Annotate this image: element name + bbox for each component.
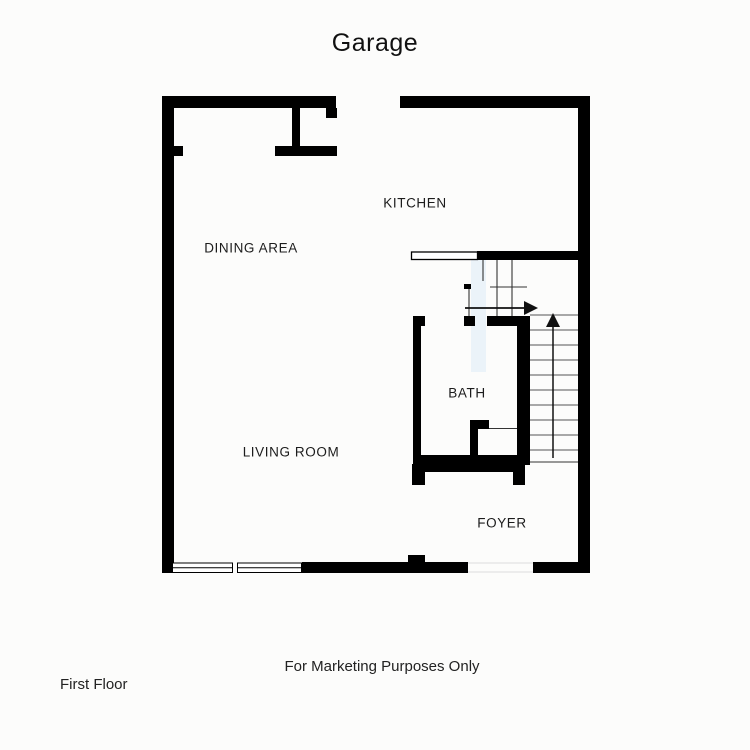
- bath-stair-shared-wall: [517, 316, 530, 463]
- bath-door-stop: [464, 284, 471, 289]
- bath-partition-stub: [470, 420, 489, 429]
- living-room-windows: [173, 563, 302, 573]
- room-label-foyer: FOYER: [477, 516, 527, 531]
- foyer-bottom-left-stub: [408, 555, 425, 563]
- bottom-wall-right-segment: [533, 562, 590, 573]
- foyer-walls: [408, 464, 525, 563]
- room-label-living-room: LIVING ROOM: [243, 445, 340, 460]
- bath-left-wall: [413, 316, 421, 465]
- closet-bottom-wall: [275, 146, 337, 156]
- bottom-wall-left-segment: [302, 562, 468, 573]
- closet-walls: [174, 108, 337, 156]
- room-label-bath: BATH: [448, 386, 485, 401]
- kitchen-counter: [412, 252, 478, 260]
- room-label-kitchen: KITCHEN: [383, 196, 446, 211]
- closet-bottom-stub: [174, 146, 183, 156]
- top-wall-left-segment: [162, 96, 336, 108]
- foyer-top-wall: [418, 464, 523, 472]
- bath-top-left-stub: [413, 316, 425, 326]
- foyer-right-stub: [513, 464, 525, 485]
- left-wall: [162, 96, 174, 573]
- closet-right-stub: [326, 108, 337, 118]
- top-wall-right-segment: [400, 96, 590, 108]
- stair-treads: [530, 315, 578, 462]
- closet-divider-wall: [292, 108, 300, 146]
- right-wall: [578, 96, 590, 573]
- bath-door-highlight: [471, 256, 486, 372]
- floor-plan-drawing: [0, 0, 750, 750]
- floor-name-label: First Floor: [60, 676, 128, 693]
- room-label-dining-area: DINING AREA: [204, 241, 298, 256]
- up-arrow-icon: [546, 313, 560, 458]
- front-door-opening: [468, 563, 533, 572]
- floor-plan-canvas: Garage: [0, 0, 750, 750]
- kitchen-bottom-wall: [477, 251, 578, 260]
- bath-door-post: [464, 316, 475, 326]
- bath-top-right-wall: [487, 316, 520, 326]
- marketing-disclaimer: For Marketing Purposes Only: [0, 658, 750, 675]
- foyer-left-stub: [412, 464, 425, 485]
